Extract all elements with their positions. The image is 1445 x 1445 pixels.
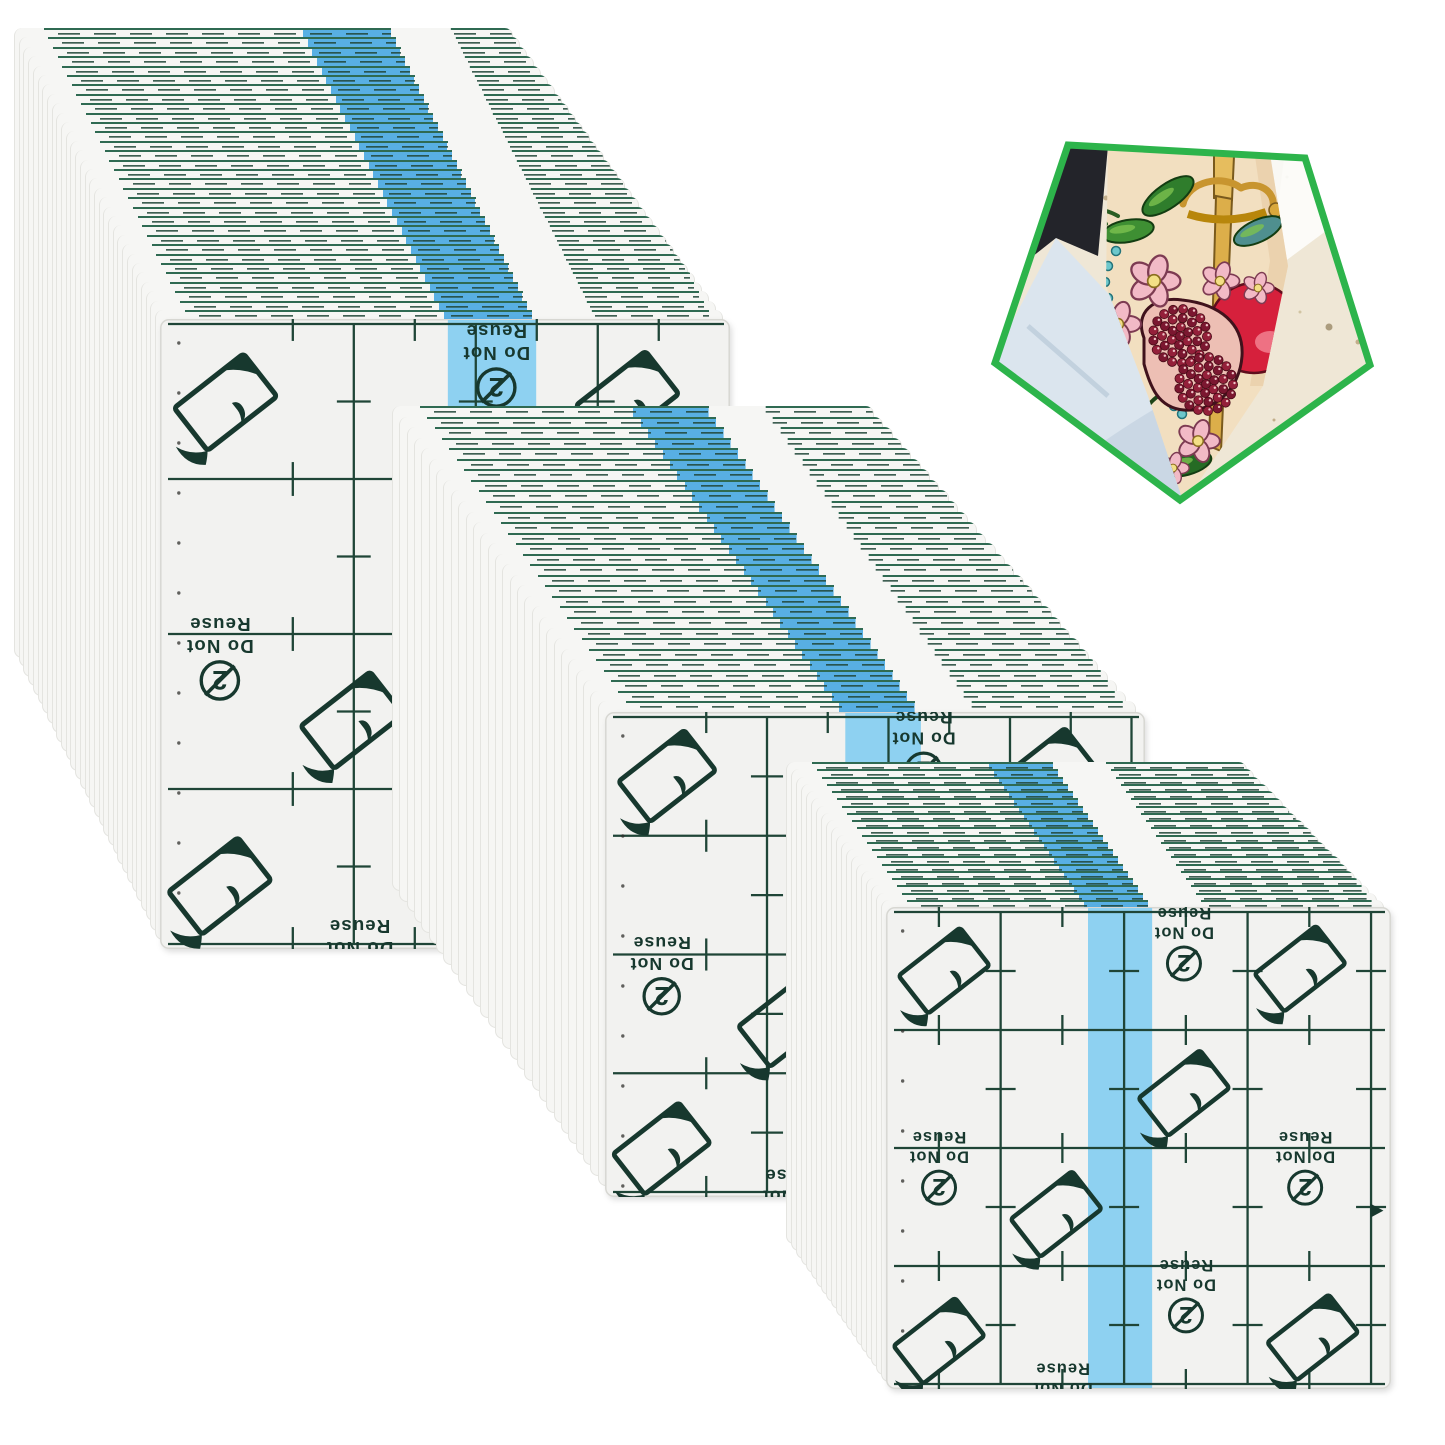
do-not-label: Do Not [1033, 1379, 1093, 1389]
do-not-label: Do Not [325, 939, 393, 950]
reuse-label: Reuse [1035, 1360, 1090, 1378]
sheet-front-face: 2Do NotReuse2Do NotReuse2Do NotReuse2Do … [886, 907, 1391, 1389]
reuse-label: Reuse [328, 917, 390, 938]
do-not-label: Do Not [1275, 1148, 1335, 1166]
do-not-label: Do Not [909, 1148, 969, 1166]
do-not-label: Do Not [892, 728, 956, 748]
do-not-label: Do Not [186, 636, 254, 657]
reuse-label: Reuse [1278, 1128, 1333, 1146]
reuse-label: Reuse [1159, 1256, 1214, 1274]
reuse-label: Reuse [189, 614, 251, 635]
reuse-label: Reuse [895, 712, 953, 727]
do-not-reuse-icon: 2Do NotReuse [325, 917, 393, 950]
tattoo-photo-badge [958, 96, 1414, 516]
do-not-label: Do Not [1154, 924, 1214, 942]
bead [1112, 247, 1121, 256]
reuse-label: Reuse [912, 1128, 967, 1146]
reuse-label: Reuse [1157, 907, 1212, 922]
reuse-label: Reuse [633, 933, 691, 953]
do-not-label: Do Not [630, 954, 694, 974]
do-not-label: Do Not [462, 343, 530, 364]
do-not-reuse-icon: 2Do NotReuse [1033, 1360, 1093, 1390]
do-not-label: Do Not [1156, 1275, 1216, 1293]
product-image: 2Do NotReuse2Do NotReuse2Do NotReuse2Do … [0, 0, 1445, 1445]
reuse-label: Reuse [465, 321, 527, 342]
badge-photo [958, 96, 1414, 516]
